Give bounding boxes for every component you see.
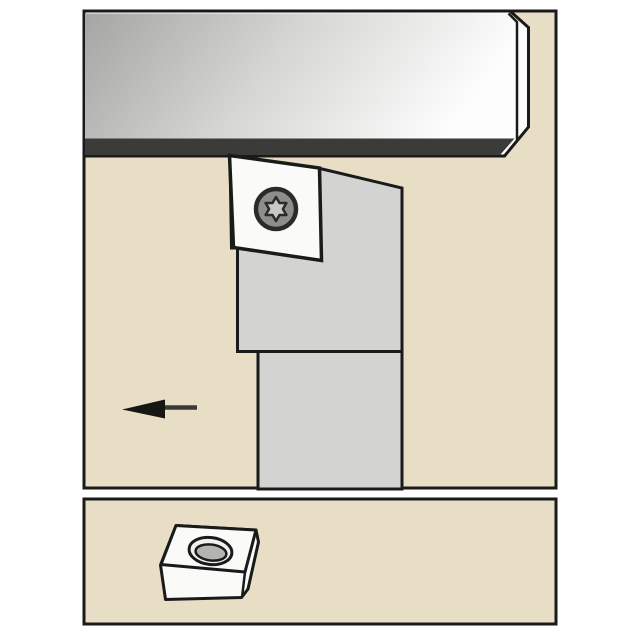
diagram-canvas: [0, 0, 640, 640]
workpiece-face: [85, 14, 517, 140]
insert-panel: [84, 499, 556, 624]
workpiece-cut-edge-band: [85, 139, 515, 156]
catalog-illustration: [0, 0, 640, 640]
torx-screw-icon: [256, 189, 296, 229]
indexable-insert-3d: [161, 526, 259, 600]
workpiece: [84, 11, 529, 156]
toolholder-shank: [258, 352, 402, 490]
diagram-root: [84, 11, 556, 624]
